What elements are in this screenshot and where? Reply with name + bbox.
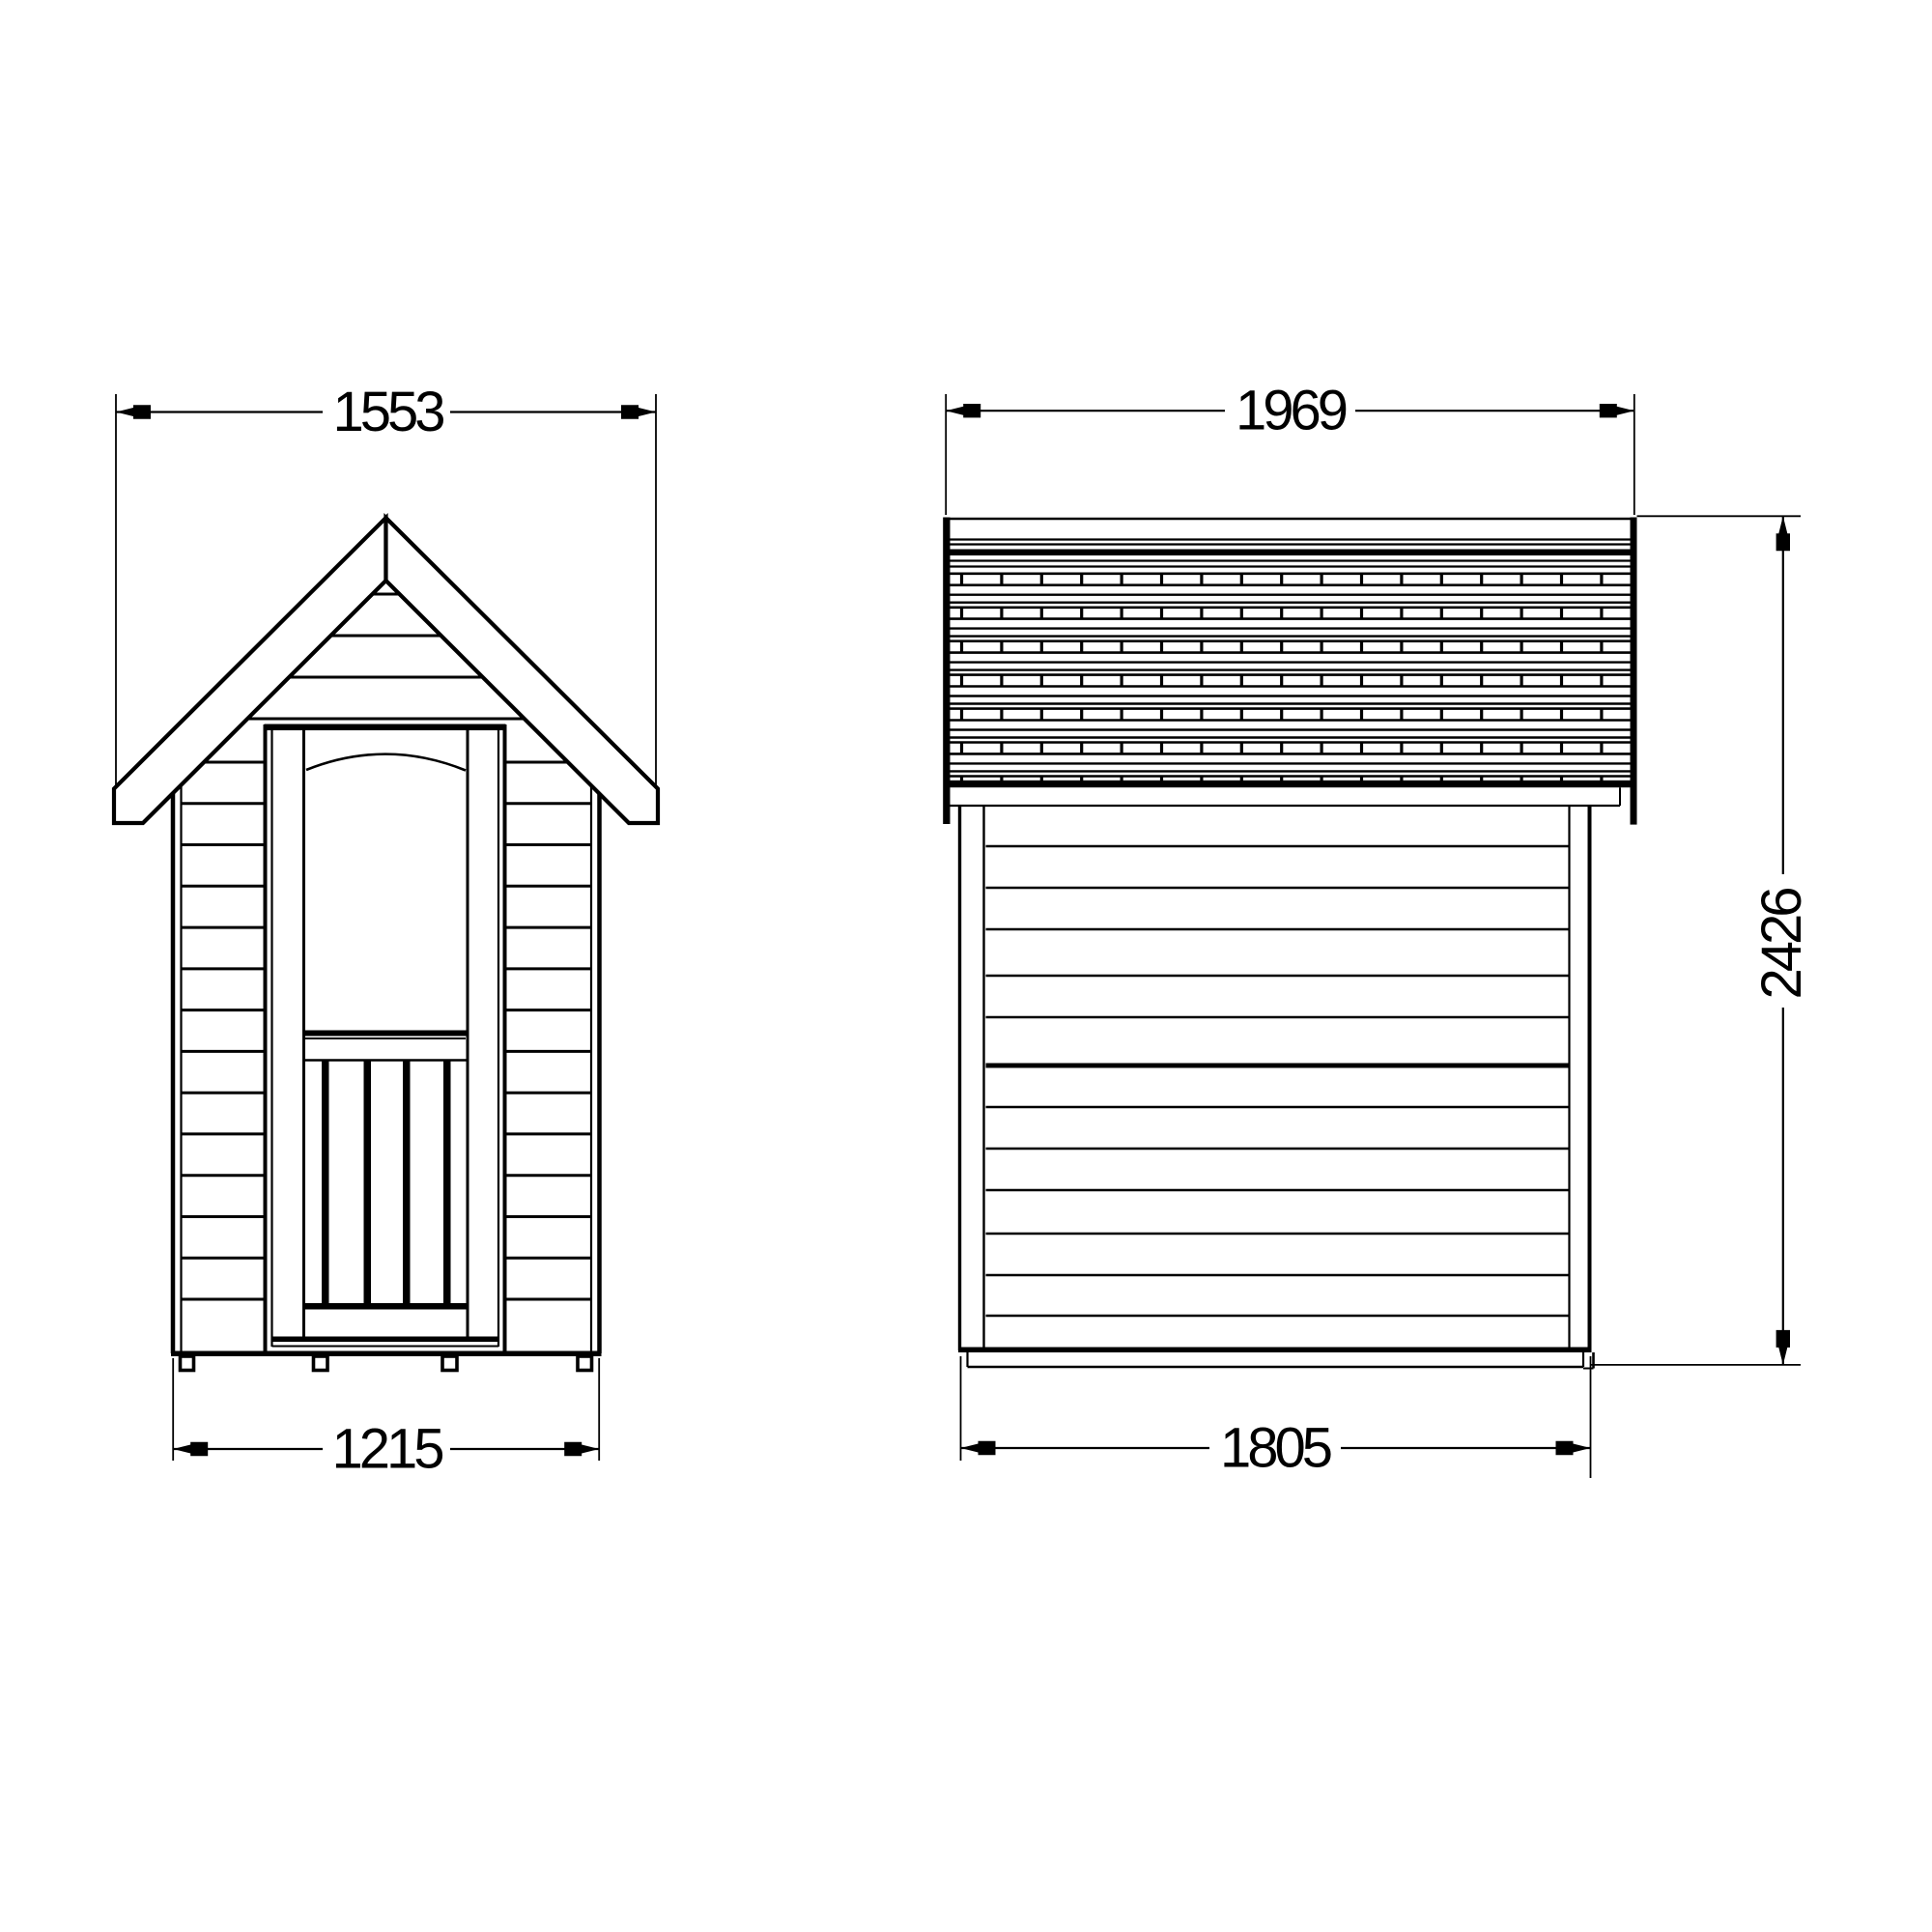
- svg-text:2426: 2426: [1750, 889, 1813, 1000]
- svg-text:1553: 1553: [332, 381, 443, 443]
- svg-text:1215: 1215: [331, 1418, 442, 1481]
- svg-text:1805: 1805: [1220, 1417, 1331, 1480]
- svg-text:1969: 1969: [1236, 380, 1347, 442]
